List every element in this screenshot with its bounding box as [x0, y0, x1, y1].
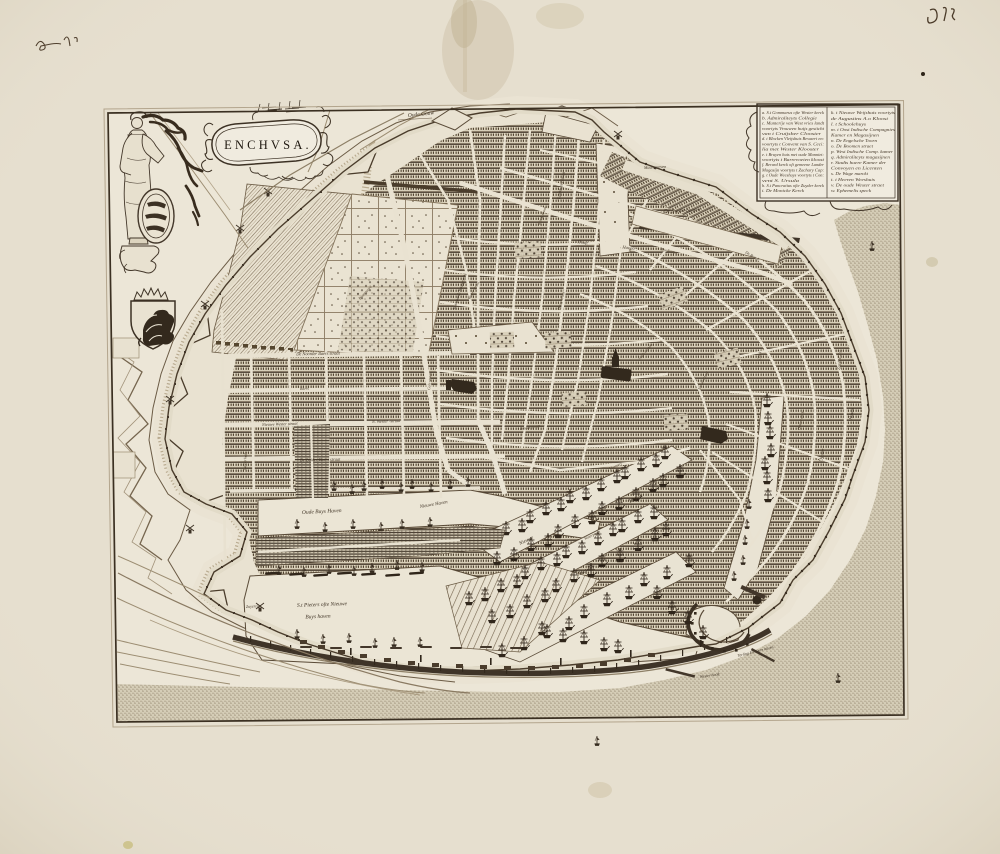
svg-text:De Noorder Baers straat: De Noorder Baers straat: [295, 351, 340, 357]
svg-text:N. Wester -straat: N. Wester -straat: [371, 418, 401, 424]
svg-text:t. t Heeren Weeshuis: t. t Heeren Weeshuis: [831, 177, 875, 182]
svg-text:o. De Boomen straet: o. De Boomen straet: [831, 144, 874, 149]
svg-text:Wester kade: Wester kade: [243, 451, 248, 470]
svg-text:Kamer en Magasijnen: Kamer en Magasijnen: [830, 132, 880, 137]
svg-text:Buys haven: Buys haven: [305, 614, 331, 621]
svg-text:p. West Indische Comp. kamer: p. West Indische Comp. kamer: [830, 149, 893, 154]
svg-text:de Augustins A.o Kloost: de Augustins A.o Kloost: [831, 116, 889, 121]
svg-text:i. De Monicke Kerck: i. De Monicke Kerck: [762, 188, 805, 193]
svg-text:Convoyen en Licenten: Convoyen en Licenten: [831, 166, 883, 171]
svg-text:Zuyerzijn: Zuyerzijn: [246, 603, 261, 609]
svg-text:ENCHVSA.: ENCHVSA.: [224, 138, 312, 152]
svg-text:n. De Engelsche Toorn: n. De Engelsche Toorn: [831, 138, 878, 143]
svg-text:w. Ephemelis speck: w. Ephemelis speck: [831, 188, 872, 193]
svg-text:s. De Wage marckt: s. De Wage marckt: [831, 171, 869, 176]
svg-text:v. De oude Wester straet: v. De oude Wester straet: [831, 182, 885, 187]
svg-text:q. Admiraliteyts magasijnen: q. Admiraliteyts magasijnen: [831, 155, 891, 160]
svg-text:Baers: Baers: [300, 387, 310, 391]
svg-text:k. t Nieuwe Weijshuis voortyts: k. t Nieuwe Weijshuis voortyts: [831, 110, 895, 115]
svg-text:l. t Schoolehuys: l. t Schoolehuys: [831, 121, 866, 126]
svg-text:De Zuider Baers straat: De Zuider Baers straat: [299, 457, 341, 463]
svg-text:m. t Oost Indische Compagnies: m. t Oost Indische Compagnies: [831, 127, 895, 132]
svg-text:r. Stadts huere Kamer der: r. Stadts huere Kamer der: [831, 160, 886, 165]
